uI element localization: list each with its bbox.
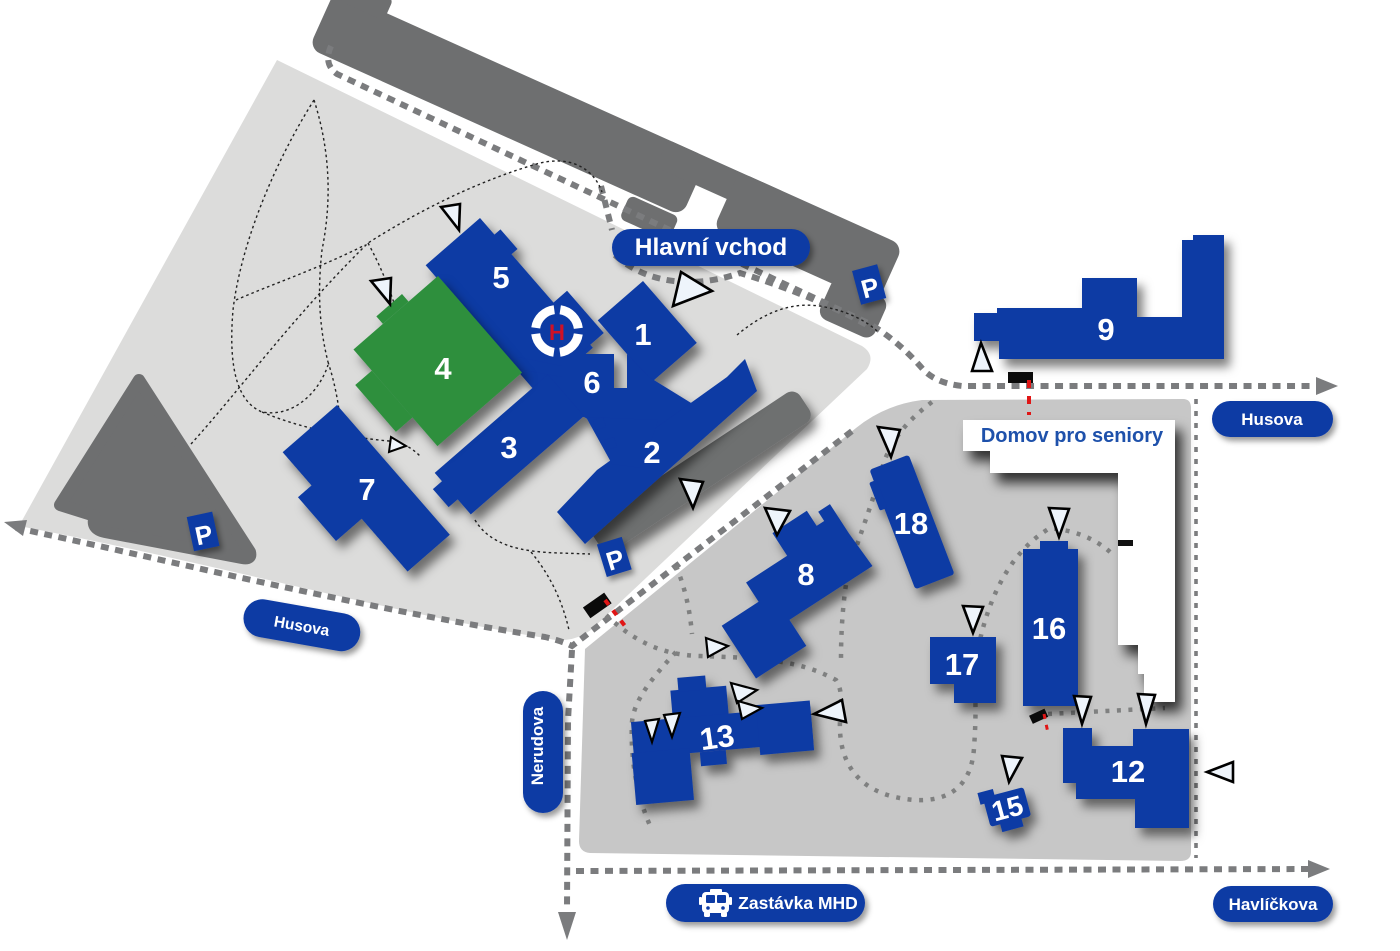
svg-text:1: 1 (634, 317, 651, 352)
svg-text:7: 7 (358, 472, 375, 507)
svg-text:Husova: Husova (1241, 410, 1303, 429)
svg-text:Hlavní vchod: Hlavní vchod (635, 234, 787, 261)
svg-text:9: 9 (1097, 312, 1114, 347)
svg-text:18: 18 (894, 506, 928, 541)
svg-text:4: 4 (434, 351, 452, 386)
svg-text:2: 2 (643, 435, 660, 470)
svg-text:8: 8 (797, 557, 814, 592)
svg-text:12: 12 (1111, 754, 1145, 789)
svg-text:Nerudova: Nerudova (528, 706, 547, 785)
svg-text:17: 17 (945, 647, 979, 682)
svg-text:Zastávka MHD: Zastávka MHD (738, 893, 858, 913)
svg-text:6: 6 (583, 365, 600, 400)
svg-text:16: 16 (1032, 611, 1066, 646)
svg-text:13: 13 (698, 718, 737, 757)
svg-text:Havlíčkova: Havlíčkova (1229, 895, 1318, 914)
svg-text:Domov pro seniory: Domov pro seniory (981, 425, 1164, 447)
svg-text:H: H (549, 320, 565, 345)
svg-text:5: 5 (492, 260, 509, 295)
svg-text:3: 3 (500, 430, 517, 465)
